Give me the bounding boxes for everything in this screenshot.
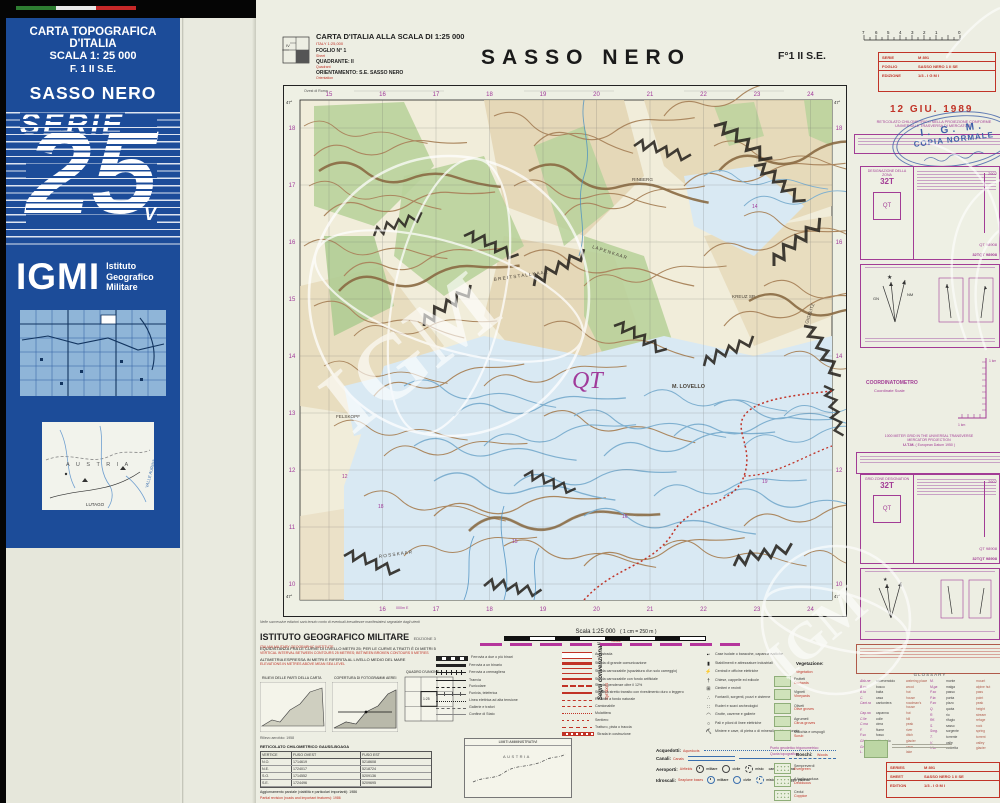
glossary-row: F.sofossoditch xyxy=(860,733,930,737)
glossary-row: C.macimapeak xyxy=(860,722,930,726)
declination-box-en: ★ xyxy=(860,568,1000,640)
svg-text:4: 4 xyxy=(899,30,902,35)
road-symbol xyxy=(562,713,592,714)
svg-text:24: 24 xyxy=(807,607,814,613)
svg-text:47°: 47° xyxy=(286,100,293,105)
carta-italia-line: CARTA D'ITALIA ALLA SCALA DI 1:25 000 xyxy=(316,32,516,41)
glossary-row: P.tapuntapoint xyxy=(930,696,1000,700)
svg-text:VALLE AURINA: VALLE AURINA xyxy=(144,458,154,488)
glossary-row: Rif.rifugiorefuge xyxy=(930,718,1000,722)
svg-text:11: 11 xyxy=(289,525,296,531)
glossary-row: F.fiumeriver xyxy=(860,728,930,732)
glossary-row: Abb.neabbeveratoiowatering place xyxy=(860,679,930,683)
boschi-label: Boschi: xyxy=(796,752,813,757)
road-symbol xyxy=(562,732,594,736)
svg-text:20: 20 xyxy=(593,92,600,98)
cover-sheet-code: F. 1 II S.E. xyxy=(6,64,180,75)
glossary-row: C.llecollehill xyxy=(860,717,930,721)
svg-text:22: 22 xyxy=(700,607,707,613)
legend-row: Funivia, teleferica xyxy=(436,692,556,696)
diagram1-caption: RILIEVI DELLE PARTI DELLA CARTA xyxy=(262,676,321,680)
legend-symbol xyxy=(436,680,466,681)
svg-text:RINBERG: RINBERG xyxy=(632,177,653,182)
flag-white xyxy=(56,6,96,10)
svg-text:KREUZ SP.: KREUZ SP. xyxy=(732,294,756,299)
svg-text:3: 3 xyxy=(911,30,914,35)
svg-text:13: 13 xyxy=(289,411,296,417)
map-title: SASSO NERO xyxy=(476,46,696,70)
vegetazione-label: Vegetazione: xyxy=(796,661,824,666)
legend-symbol xyxy=(436,714,466,715)
legend-row: Ferrovia a un binario xyxy=(436,664,556,668)
svg-text:15: 15 xyxy=(289,297,296,303)
svg-text:21: 21 xyxy=(647,607,654,613)
legend-row: Sentiero xyxy=(562,719,696,723)
flag-green xyxy=(16,6,56,10)
glossary-row: M.montemount xyxy=(930,679,1000,683)
glossary-row: Q.quotaheight xyxy=(930,707,1000,711)
scale-bar-black xyxy=(504,636,706,641)
cover-map-name: SASSO NERO xyxy=(6,83,180,104)
svg-text:10: 10 xyxy=(836,582,843,588)
road-symbol xyxy=(562,692,592,693)
utm-ref-box xyxy=(856,452,1000,474)
boschi-row: SempreverdiEvergreen xyxy=(774,763,860,774)
svg-text:47°: 47° xyxy=(286,594,293,599)
glossary-row: Cant.racantonieraroadman's house xyxy=(860,701,930,709)
coordinatometro-block: COORDINATOMETRO Coordinate Scale 1 km 1 … xyxy=(860,356,998,432)
svg-text:14: 14 xyxy=(752,204,758,210)
legend-row: Linea elettrica ad alta tensione xyxy=(436,699,556,703)
legend-row: Confine di Stato xyxy=(436,713,556,717)
boschi-row: A foglia caducaDeciduous xyxy=(774,776,860,787)
igmi-logo-block: IGMI IstitutoGeograficoMilitare xyxy=(16,256,154,298)
point-symbol: ○ xyxy=(704,721,713,727)
road-symbol xyxy=(562,720,592,721)
svg-text:19: 19 xyxy=(540,607,547,613)
margin-ruler: 76 54 32 10 xyxy=(862,30,962,46)
svg-text:AUSTRIA: AUSTRIA xyxy=(503,754,531,759)
glossary-row: B.tabaitahut xyxy=(860,690,930,694)
svg-text:22: 22 xyxy=(700,92,707,98)
veg-row: VignetiVineyards xyxy=(774,689,860,700)
svg-text:24: 24 xyxy=(807,92,814,98)
sample-grid-square: QT xyxy=(873,192,901,220)
index-map-grid xyxy=(20,310,166,396)
svg-text:19: 19 xyxy=(540,92,547,98)
legend-row: Mulattiera xyxy=(562,712,696,716)
cover-scale: SCALA 1: 25 000 xyxy=(6,50,180,62)
point-symbol: ⛏ xyxy=(704,729,713,735)
svg-text:18: 18 xyxy=(378,504,384,510)
glossary-row: Cap.nacapannahut xyxy=(860,711,930,715)
canali-label: Canali: xyxy=(656,756,671,761)
svg-text:18: 18 xyxy=(486,607,493,613)
svg-text:17: 17 xyxy=(433,92,440,98)
legend-note-top: Nelle successive edizioni sarà tenuto co… xyxy=(260,620,420,624)
svg-text:A U S T R I A: A U S T R I A xyxy=(66,462,131,468)
top-binding-strip xyxy=(0,0,262,18)
utm-note: 1000 METER GRID IN THE UNIVERSAL TRANSVE… xyxy=(856,434,1000,447)
gauss-boaga-table: VERTICE FUSO OVEST FUSO EST N.O. 1714619… xyxy=(260,751,432,788)
svg-text:17: 17 xyxy=(433,607,440,613)
revision-note-box xyxy=(856,644,1000,674)
svg-text:1 km: 1 km xyxy=(989,359,996,363)
svg-text:7: 7 xyxy=(862,30,865,35)
serie-25-band: SERIE 25 V xyxy=(6,106,180,248)
legend-symbol xyxy=(436,708,466,709)
svg-text:Ovest di Roma: Ovest di Roma xyxy=(304,89,328,93)
veg-swatch xyxy=(774,676,791,687)
point-symbol: ▪▫ xyxy=(704,652,713,658)
point-symbol: † xyxy=(704,678,713,684)
svg-text:★: ★ xyxy=(887,274,892,281)
topographic-map: IGM B R E I T S T A L L K A A R L A P E … xyxy=(284,86,846,616)
series-box-en: SERIESM 891 SHEETSASSO NERO 1 II SE EDIT… xyxy=(886,762,1000,798)
svg-text:16: 16 xyxy=(379,607,386,613)
legend-row: Strada carrozzabile (spaziatura d'un sol… xyxy=(562,668,696,674)
cover-panel: CARTA TOPOGRAFICA D'ITALIA SCALA 1: 25 0… xyxy=(6,18,180,548)
point-symbol: ∷ xyxy=(704,704,713,710)
svg-text:1: 1 xyxy=(935,30,938,35)
road-symbol xyxy=(562,700,592,701)
legend-row: Strada, pendenze oltre il 12% xyxy=(562,684,696,688)
svg-text:18: 18 xyxy=(289,126,296,132)
cover-title: CARTA TOPOGRAFICA D'ITALIA xyxy=(6,18,180,50)
glossary-row: S.sassorock xyxy=(930,724,1000,728)
svg-text:16: 16 xyxy=(622,514,628,520)
glossary-row: R.riostream xyxy=(930,713,1000,717)
glacier-code-qt: QT xyxy=(572,368,604,394)
boschi-row: CeduiCoppice xyxy=(774,790,860,801)
veg-row: FruttetiOrchards xyxy=(774,676,860,687)
road-symbol xyxy=(562,685,592,687)
scanned-map-sheet: { "cover":{ "title1":"CARTA TOPOGRAFICA … xyxy=(0,0,1000,803)
gauss-row: N.O. 1714619 5218608 xyxy=(261,759,431,766)
cover-index-map xyxy=(20,310,166,396)
legend-row: Funicolare xyxy=(436,685,556,689)
svg-text:47°: 47° xyxy=(834,594,841,599)
svg-text:NM: NM xyxy=(907,292,913,297)
wood-swatch xyxy=(774,790,791,801)
glossary-row: Sorg.sorgentespring xyxy=(930,729,1000,733)
zona-designation-box-en: GRID ZONE DESIGNATION 32T QT 2602 QT 989… xyxy=(860,474,1000,564)
svg-text:12: 12 xyxy=(836,468,843,474)
glossary-row: M.gamalgaalpine hut xyxy=(930,685,1000,689)
edizione: EDIZIONE 3 xyxy=(414,636,436,641)
legend-row: Strada in costruzione xyxy=(562,732,696,736)
svg-text:23: 23 xyxy=(754,92,761,98)
legend-symbol xyxy=(436,692,466,696)
svg-text:10: 10 xyxy=(289,582,296,588)
glossary-title: GLOSSARY xyxy=(860,672,1000,677)
svg-text:16: 16 xyxy=(379,92,386,98)
veg-row: AgrumetiCitrus groves xyxy=(774,716,860,727)
svg-text:GN: GN xyxy=(873,296,879,301)
legend-row: Gallerie e trafori xyxy=(436,706,556,710)
road-symbol xyxy=(562,662,592,665)
cover-back-fold xyxy=(6,548,180,803)
index-highlight-cell xyxy=(101,315,116,324)
map-frame: IGM B R E I T S T A L L K A A R L A P E … xyxy=(283,85,847,617)
svg-text:★: ★ xyxy=(883,577,888,583)
gauss-row: N.E. 1724017 5218724 xyxy=(261,766,431,773)
svg-text:LUTAGO: LUTAGO xyxy=(86,502,105,507)
svg-text:14: 14 xyxy=(836,354,843,360)
glossary-row: B.coboscowood xyxy=(860,685,930,689)
gauss-row: S.O. 1714552 5209136 xyxy=(261,773,431,780)
veg-row: Macchia e cespugliScrub xyxy=(774,730,860,741)
svg-text:000m E: 000m E xyxy=(396,606,409,610)
svg-text:23: 23 xyxy=(754,607,761,613)
svg-text:0: 0 xyxy=(958,30,961,35)
survey-diagram-1 xyxy=(260,682,326,732)
legend-row: Strada a stretto transito con rivestimen… xyxy=(562,691,696,695)
road-symbol xyxy=(562,668,592,674)
legend-symbol xyxy=(436,656,468,661)
legend-symbol xyxy=(436,687,466,688)
svg-text:17: 17 xyxy=(289,183,296,189)
point-symbol: ∴ xyxy=(704,695,713,701)
point-symbol: ⊞ xyxy=(704,686,713,692)
sample-grid-square-en: QT xyxy=(873,495,901,523)
diagram3-caption: QUADRO D'UNIONE xyxy=(406,670,439,674)
flag-red xyxy=(96,6,136,10)
point-symbol: ⚡ xyxy=(704,669,713,675)
map-sheet: IV CARTA D'ITALIA ALLA SCALA DI 1:25 000… xyxy=(256,0,1000,803)
igm-name: ISTITUTO GEOGRAFICO MILITARE xyxy=(260,632,409,642)
road-symbol xyxy=(562,652,592,659)
veg-swatch xyxy=(774,716,791,727)
gauss-boaga-title: RETICOLATO CHILOMETRICO GAUSS-BOAGA xyxy=(260,744,349,749)
orientation-line: Orientation xyxy=(316,76,516,80)
legend-row: Camionabile xyxy=(562,705,696,709)
fold-strip xyxy=(180,18,256,803)
svg-text:5: 5 xyxy=(887,30,890,35)
svg-text:15: 15 xyxy=(512,539,518,545)
road-symbol xyxy=(562,727,592,728)
aggiornamento-note: Aggiornamento parziale (viabilità e part… xyxy=(260,790,357,794)
legend-row: Strada carrozzabile con fondo artificial… xyxy=(562,678,696,682)
road-symbol xyxy=(562,706,592,707)
aggiornamento-note-en: Partial revision (roads and important fe… xyxy=(260,796,341,800)
zona-designation-box-it: DESIGNAZIONE DELLA ZONA 32T QT 2602 QT 9… xyxy=(860,166,1000,260)
svg-text:16: 16 xyxy=(289,240,296,246)
svg-text:1 km: 1 km xyxy=(958,423,966,427)
igmi-logo: IGMI xyxy=(16,256,100,298)
scale-bar-magenta xyxy=(480,643,740,646)
veg-swatch xyxy=(774,730,791,741)
veg-swatch xyxy=(774,689,791,700)
green-sample-patch xyxy=(864,740,888,758)
svg-text:16: 16 xyxy=(836,240,843,246)
point-symbol: ◠ xyxy=(704,712,713,718)
serie-number: 25 xyxy=(26,114,157,232)
aerofoto-note: Rilievo aerofoto: 1958 xyxy=(260,736,294,740)
legend-row: Tratturo, pista o traccia xyxy=(562,726,696,730)
svg-text:12: 12 xyxy=(342,474,348,480)
legend-col-roads: Autostrada Strada di grande comunicazion… xyxy=(562,652,696,740)
diagram2-caption: COPERTURA DI FOTOGRAMMI AEREI xyxy=(334,676,397,680)
quadrant-key-diagram: IV xyxy=(282,36,312,74)
legend-row: Ferrovia a cremagliera xyxy=(436,670,556,675)
wood-swatch xyxy=(774,763,791,774)
svg-text:M. LOVELLO: M. LOVELLO xyxy=(672,384,705,390)
svg-text:IV: IV xyxy=(286,43,290,48)
svg-text:18: 18 xyxy=(486,92,493,98)
survey-diagram-2 xyxy=(332,682,398,732)
sheet-code: F°1 II S.E. xyxy=(778,50,826,62)
veg-row: OlivetiOlive groves xyxy=(774,703,860,714)
legend-row: Autostrada xyxy=(562,652,696,659)
cover-location-inset: A U S T R I A LUTAGO VALLE AURINA xyxy=(42,422,154,510)
veg-swatch xyxy=(774,703,791,714)
legend-symbol xyxy=(436,664,466,667)
limiti-box: LIMITI AMMINISTRATIVI AUSTRIA xyxy=(464,738,572,798)
svg-text:12: 12 xyxy=(289,468,296,474)
vegetation-legend: Vegetazione: Vegetation FruttetiOrchards… xyxy=(774,652,860,803)
svg-text:14: 14 xyxy=(289,354,296,360)
svg-text:1:25: 1:25 xyxy=(423,697,430,701)
acquedotti-label: Acquedotti: xyxy=(656,748,681,753)
serie-box-it: SERIEM 891 FOGLIOSASSO NERO 1 II SE EDIZ… xyxy=(878,52,996,92)
glossary-row: C.casahouse xyxy=(860,696,930,700)
glossary-row: P.sopassopass xyxy=(930,690,1000,694)
gauss-row: S.E. 1724496 5209695 xyxy=(261,780,431,787)
svg-text:19: 19 xyxy=(762,479,768,485)
svg-text:2: 2 xyxy=(923,30,926,35)
wood-swatch xyxy=(774,776,791,787)
legend-row: Tranvia xyxy=(436,679,556,683)
legend-row: Strada di grande comunicazione xyxy=(562,662,696,666)
legend-symbol xyxy=(436,701,466,702)
igmi-institute-name: IstitutoGeograficoMilitare xyxy=(106,261,154,292)
green-patch-note xyxy=(892,742,952,750)
svg-text:21: 21 xyxy=(647,92,654,98)
svg-text:FELSKOPF: FELSKOPF xyxy=(336,414,360,419)
glossary-row: T.torrentetorrent xyxy=(930,735,1000,739)
serie-v: V xyxy=(144,204,156,225)
svg-text:6: 6 xyxy=(875,30,878,35)
road-symbol xyxy=(562,678,592,680)
legend-symbol xyxy=(436,670,466,675)
legend-col-railways: Ferrovia a due o più binari Ferrovia a u… xyxy=(436,656,556,720)
legend-row: Rotabile a fondo naturale xyxy=(562,698,696,702)
point-symbol: ▮ xyxy=(704,661,713,667)
svg-text:18: 18 xyxy=(836,126,843,132)
declination-box-it: ★ GNNM xyxy=(860,264,1000,348)
legend-row: Ferrovia a due o più binari xyxy=(436,656,556,661)
svg-text:47°: 47° xyxy=(834,100,841,105)
glossary-row: P.zopizzopeak xyxy=(930,701,1000,705)
